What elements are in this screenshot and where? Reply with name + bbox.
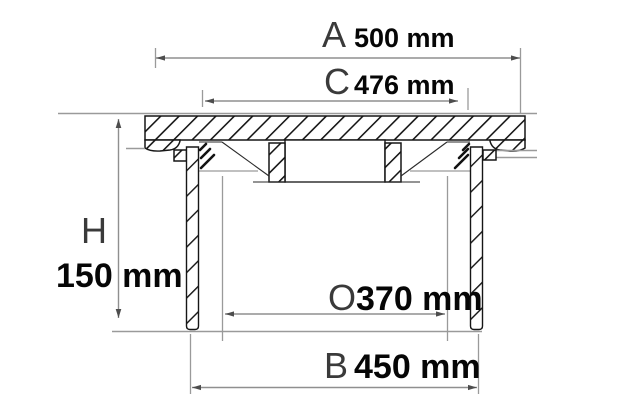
right-rib-strip xyxy=(385,143,401,182)
dim-a-value: 500 mm xyxy=(354,23,455,53)
left-shoulder-block xyxy=(174,150,187,161)
dim-o-value: 370 mm xyxy=(356,280,483,318)
dim-h-value: 150 mm xyxy=(56,257,183,295)
center-boss-face xyxy=(285,140,385,182)
dimension-c: C 476 mm xyxy=(203,61,469,110)
dim-c-value: 476 mm xyxy=(354,70,455,100)
dim-b-letter: B xyxy=(324,345,348,386)
dim-b-value: 450 mm xyxy=(354,348,481,386)
left-rib-strip xyxy=(269,143,285,182)
dim-h-letter: H xyxy=(81,210,107,251)
dimension-b: B 450 mm xyxy=(191,334,481,394)
cross-section-diagram: A 500 mm C 476 mm H 150 mm xyxy=(0,0,642,407)
dim-c-letter: C xyxy=(324,61,350,102)
frame-seat-section xyxy=(174,140,496,182)
left-wall-section xyxy=(187,147,199,330)
right-shoulder-block xyxy=(483,150,496,160)
dim-a-letter: A xyxy=(322,14,346,55)
dimension-o: O 370 mm xyxy=(223,176,483,341)
technical-drawing-canvas: A 500 mm C 476 mm H 150 mm xyxy=(0,0,642,407)
dim-o-letter: O xyxy=(328,277,356,318)
